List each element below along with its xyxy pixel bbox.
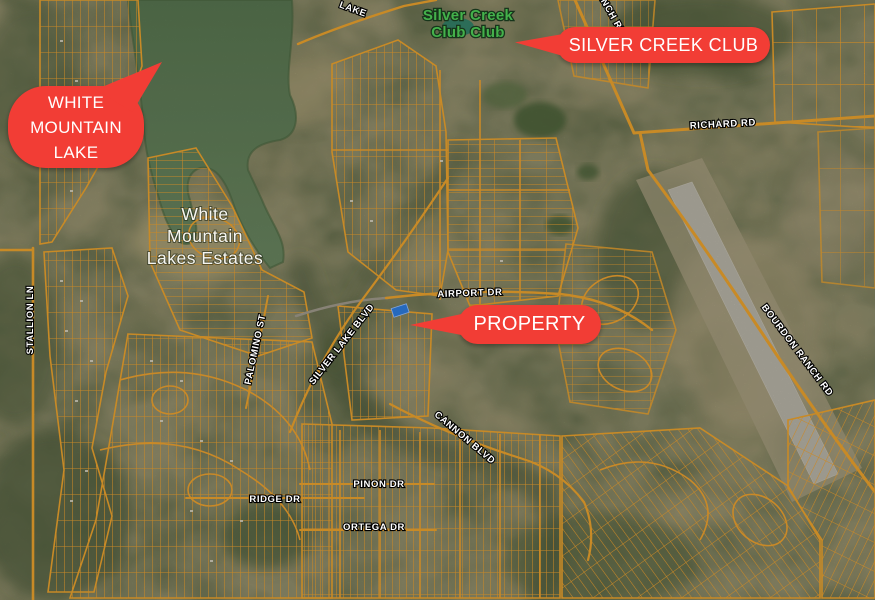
- callout-white-mountain-lake: WHITE MOUNTAIN LAKE: [8, 86, 144, 168]
- callout-property: PROPERTY: [458, 305, 601, 344]
- road-label-stallion: STALLION LN: [25, 286, 36, 355]
- road-label-pinon: PINON DR: [353, 479, 404, 490]
- road-label-ortega: ORTEGA DR: [343, 522, 405, 533]
- road-label-airport: AIRPORT DR: [437, 287, 502, 300]
- golf-club-label-line2: Club Club: [431, 24, 505, 41]
- callout-silver-creek-club-text: SILVER CREEK CLUB: [569, 35, 759, 56]
- map-canvas[interactable]: Silver Creek Club Club White Mountain La…: [0, 0, 875, 600]
- callout-silver-creek-club: SILVER CREEK CLUB: [557, 27, 770, 63]
- golf-club-label-line1: Silver Creek: [423, 7, 514, 24]
- community-label-line2: Mountain: [167, 226, 243, 246]
- community-label-line3: Lakes Estates: [147, 248, 263, 268]
- road-label-ridge: RIDGE DR: [249, 494, 300, 505]
- callout-property-text: PROPERTY: [473, 313, 585, 336]
- community-label-line1: White: [181, 204, 228, 224]
